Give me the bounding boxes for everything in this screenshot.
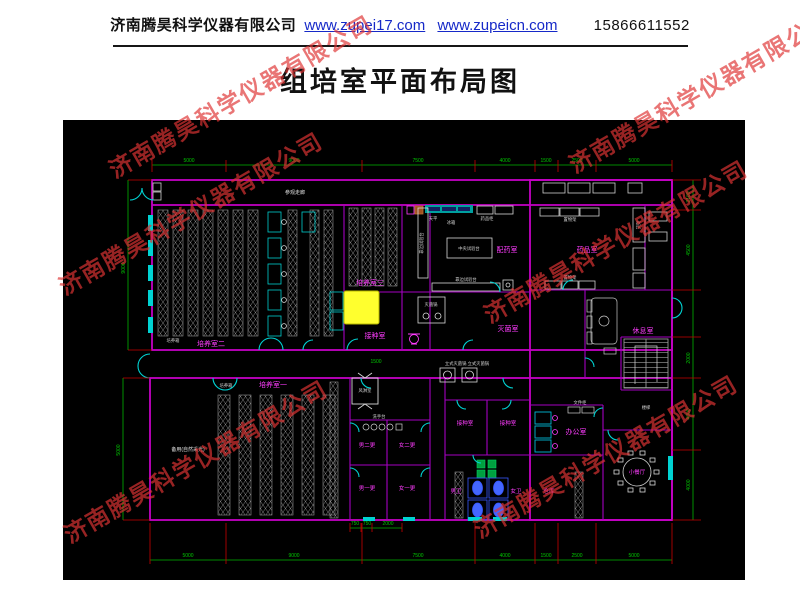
label-shelf-bottom: 置物架 [564, 274, 578, 281]
dim-bottom-5: 1500 [540, 553, 551, 559]
label-central-bench: 中央试验台 [458, 245, 479, 252]
dim-left-lower: 5000 [116, 444, 122, 455]
label-shelf-top: 置物架 [564, 216, 578, 223]
dim-top-1: 5000 [183, 158, 194, 164]
phone-number: 15866611552 [594, 17, 690, 34]
dim-right-5: 4000 [686, 479, 692, 490]
dim-sub-1: 750 [351, 521, 360, 527]
label-corridor: 参观走廊 [285, 189, 305, 196]
label-womens-change1: 女一更 [399, 484, 416, 492]
floor-plan-svg: 5000 9000 7500 4000 1500 2500 5000 5000 … [63, 120, 745, 580]
label-dining: 小餐厅 [629, 468, 646, 476]
dim-left-upper: 9000 [121, 262, 127, 273]
dim-sub-2: 750 [363, 521, 372, 527]
header-divider [113, 45, 688, 47]
label-inoculation-b: 接种室 [500, 419, 517, 427]
label-lounge: 休息室 [633, 326, 654, 335]
label-file-cabinet: 文件柜 [574, 399, 588, 406]
label-fridge: 冰箱 [447, 219, 456, 226]
company-name: 济南腾昊科学仪器有限公司 [110, 17, 296, 34]
label-air-shower: 风淋室 [359, 387, 373, 394]
label-room2: 培养室二 [197, 339, 225, 348]
dim-top-6: 2500 [571, 158, 582, 164]
label-rack-shelf: 货架 [635, 220, 642, 229]
dim-top-2: 9000 [288, 158, 299, 164]
label-medicine-store: 药品室 [577, 245, 598, 254]
label-mens-change1: 男一更 [359, 485, 376, 492]
label-room3: 培养室三 [356, 278, 384, 287]
label-mens-wc: 男卫 [450, 488, 462, 495]
dim-bottom-6: 2500 [571, 553, 582, 559]
link-zupeicn[interactable]: www.zupeicn.com [437, 17, 557, 34]
label-storage: 仓库 [543, 487, 555, 495]
dim-sub-3: 2000 [382, 521, 393, 527]
label-inoculation-a: 接种室 [457, 419, 474, 427]
label-office: 办公室 [566, 427, 587, 436]
label-medicine-cabinet: 药品柜 [481, 215, 495, 222]
dim-right-2: 4500 [686, 244, 692, 255]
dim-bottom-2: 9000 [288, 553, 299, 559]
dim-bottom-4: 4000 [499, 553, 510, 559]
dim-top-4: 4000 [499, 158, 510, 164]
label-wash-station: 洗手台 [373, 413, 386, 420]
label-incubator2: 培养箱 [220, 382, 234, 389]
label-room1: 培养室一 [259, 380, 287, 389]
label-womens-change2: 女二更 [399, 441, 416, 449]
dim-bottom-7: 5000 [628, 553, 639, 559]
label-autoclave: 灭菌锅 [425, 301, 439, 308]
label-sterilization: 灭菌室 [498, 324, 519, 333]
label-side-bench: 靠边试验台 [455, 276, 476, 283]
label-stairs: 楼梯 [642, 404, 651, 411]
dim-top-7: 5000 [628, 158, 639, 164]
header-bar: 济南腾昊科学仪器有限公司 www.zupei17.com www.zupeicn… [0, 14, 800, 35]
dim-right-1: 2100 [686, 191, 692, 202]
page: { "header": { "company": "济南腾昊科学仪器有限公司",… [0, 0, 800, 600]
label-spare-room: 备用(自然采光) [171, 446, 205, 453]
label-media-prep: 配药室 [497, 245, 518, 254]
floor-plan-image: 5000 9000 7500 4000 1500 2500 5000 5000 … [63, 120, 745, 580]
page-title: 组培室平面布局图 [0, 60, 800, 99]
dim-right-4: 4000 [686, 408, 692, 419]
dim-top-3: 7500 [412, 158, 423, 164]
label-inoculation-main: 接种室 [365, 331, 386, 340]
stairs-graphic [624, 339, 668, 388]
dim-right-3: 2000 [686, 352, 692, 363]
label-mens-change2: 男二更 [359, 442, 376, 449]
highlighted-equipment [344, 291, 379, 324]
link-zupei17[interactable]: www.zupei17.com [304, 17, 425, 34]
dim-top-5: 1500 [540, 158, 551, 164]
label-side-bench-v: 靠边试验台 [418, 232, 425, 253]
label-incubator: 培养箱 [167, 337, 181, 344]
dim-corridor-width: 1500 [370, 359, 381, 365]
label-womens-wc: 女卫 [510, 487, 522, 495]
dim-bottom-1: 5000 [182, 553, 193, 559]
label-vertical-autoclaves: 立式灭菌锅 立式灭菌锅 [445, 360, 490, 367]
dim-bottom-3: 7500 [412, 553, 423, 559]
